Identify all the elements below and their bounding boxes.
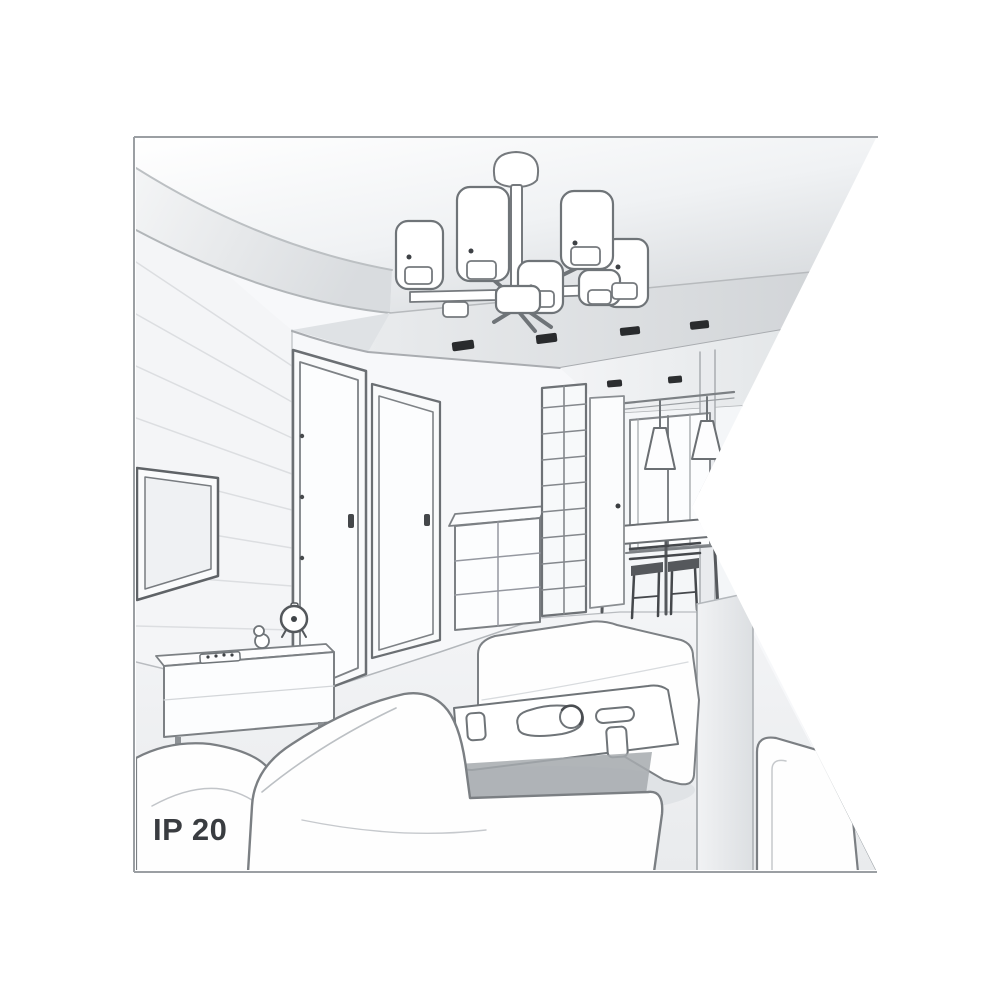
interior-door-middle <box>372 384 440 658</box>
remote-control <box>200 652 241 664</box>
hallway-door <box>590 396 624 608</box>
chandelier-canopy <box>494 152 538 187</box>
chest-of-drawers <box>449 506 546 630</box>
alarm-clock <box>281 603 307 637</box>
door-handle <box>348 514 354 528</box>
wall-tv <box>137 468 218 600</box>
side-cabinet-panel <box>697 592 753 872</box>
ip-rating-label: IP 20 <box>153 812 227 847</box>
door-handle <box>424 514 430 526</box>
chandelier-hub <box>496 286 540 313</box>
serving-plate <box>517 706 583 737</box>
shelving-unit <box>542 384 586 616</box>
room-illustration: IP 20 <box>0 0 1000 1000</box>
